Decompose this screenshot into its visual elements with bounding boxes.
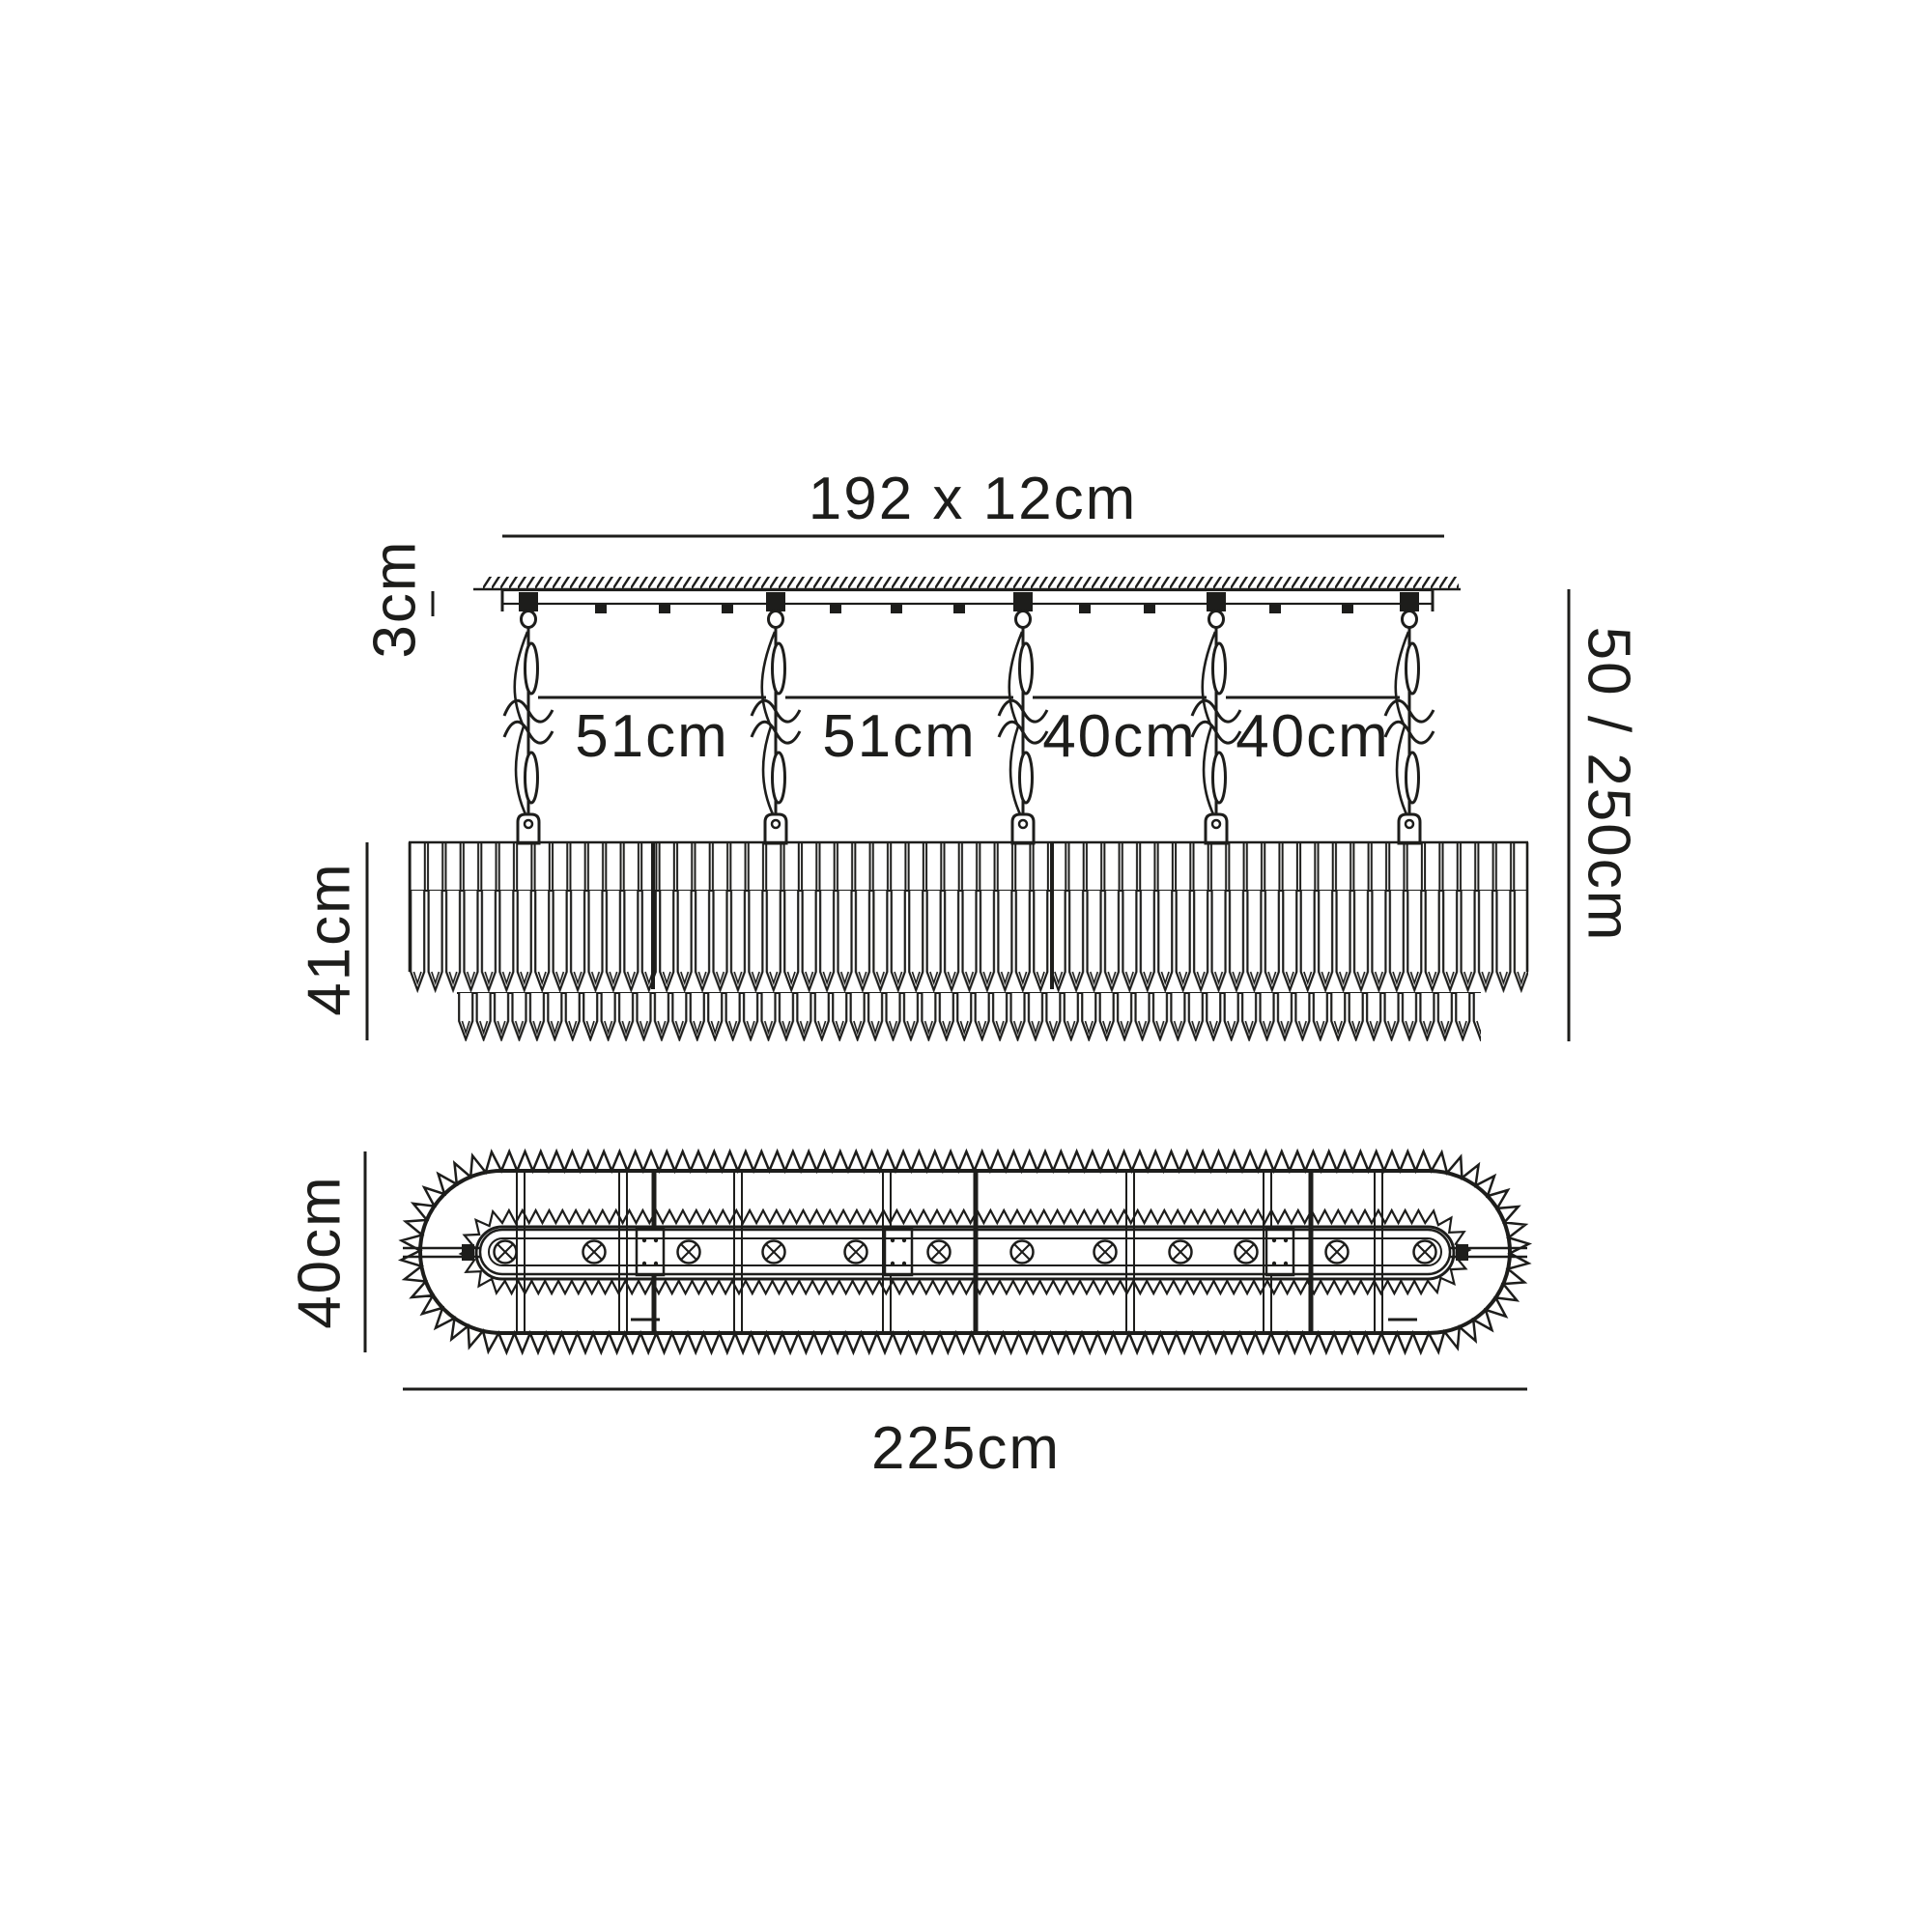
- lamp-symbol-icon: [678, 1241, 700, 1264]
- bar-hooks: [595, 604, 1353, 613]
- crystal-top-band: [409, 842, 1528, 891]
- spacing-label-2: 51cm: [822, 703, 977, 770]
- lamp-symbol-icon: [1094, 1241, 1117, 1264]
- bar-hook-icon: [1144, 604, 1155, 613]
- ceiling-hatch: [483, 577, 1459, 589]
- bar-hook-icon: [659, 604, 670, 613]
- plan-view: 40cm 225cm: [287, 1151, 1529, 1482]
- suspension-chain: [1192, 592, 1240, 843]
- lamp-symbol-icon: [1170, 1241, 1192, 1264]
- plan-stem-block: [462, 1244, 474, 1261]
- bar-hook-icon: [1079, 604, 1091, 613]
- bar-hook-icon: [1342, 604, 1353, 613]
- plate-size-label: 192 x 12cm: [809, 466, 1138, 532]
- suspension-chain: [999, 592, 1047, 843]
- lamp-symbol-icon: [1236, 1241, 1258, 1264]
- channel-connector-box: [637, 1229, 664, 1275]
- suspension-chain: [752, 592, 800, 843]
- plan-width-label: 40cm: [287, 1175, 354, 1329]
- dimension-diagram: 192 x 12cm 3cm 51cm 51cm 40cm 40cm: [0, 0, 1932, 1932]
- body-height-label: 41cm: [297, 862, 363, 1016]
- bar-hook-icon: [722, 604, 733, 613]
- lamp-symbol-icon: [583, 1241, 606, 1264]
- plate-height-label: 3cm: [362, 539, 429, 658]
- crystal-body: [409, 842, 1528, 1041]
- channel-connector-box: [885, 1229, 912, 1275]
- drop-label: 50 / 250cm: [1575, 627, 1641, 943]
- spacing-label-3: 40cm: [1042, 703, 1197, 770]
- lamp-symbol-icon: [1011, 1241, 1034, 1264]
- suspension-chain: [504, 592, 553, 843]
- bar-hook-icon: [830, 604, 841, 613]
- plan-generated-geometry: [401, 1151, 1528, 1352]
- plan-stem-block: [1456, 1244, 1468, 1261]
- lamp-symbol-icon: [1326, 1241, 1349, 1264]
- plan-length-label: 225cm: [871, 1415, 1061, 1482]
- inner-crystal-fringe: [461, 1210, 1469, 1293]
- spacing-label-1: 51cm: [575, 703, 729, 770]
- lamp-symbol-icon: [845, 1241, 867, 1264]
- lamp-symbol-icon: [495, 1241, 517, 1264]
- spacing-label-4: 40cm: [1236, 703, 1390, 770]
- mounting-bar: [502, 590, 1433, 604]
- suspension-chain: [1385, 592, 1434, 843]
- lamp-symbol-icon: [763, 1241, 785, 1264]
- bar-hook-icon: [953, 604, 965, 613]
- lamp-symbol-icon: [928, 1241, 951, 1264]
- crystal-main-tier: [409, 891, 1528, 993]
- side-elevation-view: 192 x 12cm 3cm 51cm 51cm 40cm 40cm: [297, 466, 1642, 1041]
- crystal-lower-tier: [457, 993, 1481, 1041]
- channel-connector-box: [1266, 1229, 1293, 1275]
- lamp-symbol-icon: [1414, 1241, 1436, 1264]
- bar-hook-icon: [1269, 604, 1281, 613]
- bar-hook-icon: [595, 604, 607, 613]
- bar-hook-icon: [891, 604, 902, 613]
